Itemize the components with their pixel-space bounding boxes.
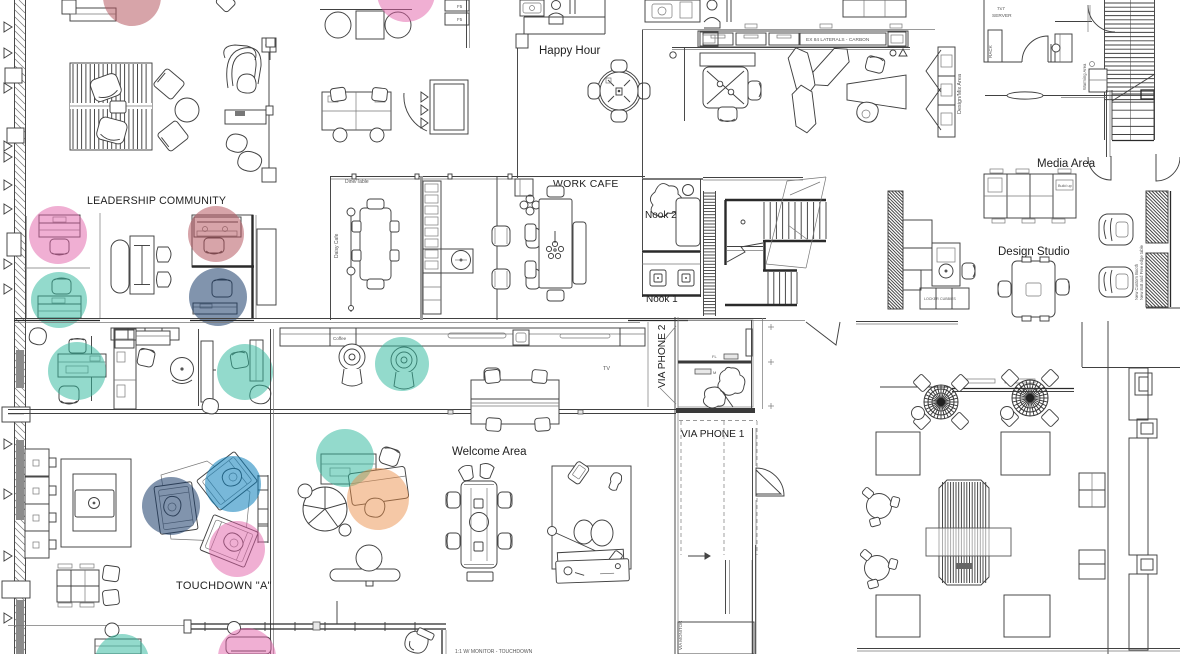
svg-text:F5: F5 [457,4,463,9]
svg-text:TV: TV [603,366,610,372]
svg-text:Media Area: Media Area [1037,158,1096,170]
svg-text:LOCKER: LOCKER [924,297,939,301]
svg-text:RACK: RACK [988,44,993,58]
svg-text:Daisy Cafe: Daisy Cafe [334,233,340,258]
svg-text:7x7: 7x7 [997,6,1005,12]
svg-text:VIA PHONE 2: VIA PHONE 2 [657,324,668,388]
svg-text:Nook 1: Nook 1 [646,294,678,305]
svg-text:Coffee: Coffee [333,336,347,341]
svg-text:Design Studio: Design Studio [998,246,1070,258]
svg-text:Dine/Table: Dine/Table [345,179,369,185]
svg-text:F5: F5 [457,17,463,22]
svg-text:M: M [713,370,716,375]
svg-text:LEADERSHIP COMMUNITY: LEADERSHIP COMMUNITY [87,195,226,207]
svg-text:TOUCHDOWN "A": TOUCHDOWN "A" [176,580,272,592]
svg-text:VIA MONITOR: VIA MONITOR [678,620,683,650]
svg-text:FL: FL [712,354,717,359]
svg-text:Design/Mix Area: Design/Mix Area [957,73,963,114]
svg-text:Warming Area: Warming Area [1082,63,1087,90]
svg-text:EX 84 LATERALS - CARBON: EX 84 LATERALS - CARBON [806,37,870,43]
svg-text:Welcome Area: Welcome Area [452,446,527,458]
svg-text:Happy Hour: Happy Hour [539,45,601,57]
svg-text:Build up: Build up [1058,184,1072,188]
svg-text:CUBBIES: CUBBIES [940,297,956,301]
svg-text:VIA PHONE 1: VIA PHONE 1 [681,429,745,440]
svg-text:Nook 2: Nook 2 [645,210,677,221]
svg-text:1:1 W/ MONITOR - TOUCHDOWN: 1:1 W/ MONITOR - TOUCHDOWN [455,649,533,654]
svg-text:New 8x8 and Free edge table: New 8x8 and Free edge table [1139,244,1144,300]
svg-text:SERVER: SERVER [992,13,1012,19]
